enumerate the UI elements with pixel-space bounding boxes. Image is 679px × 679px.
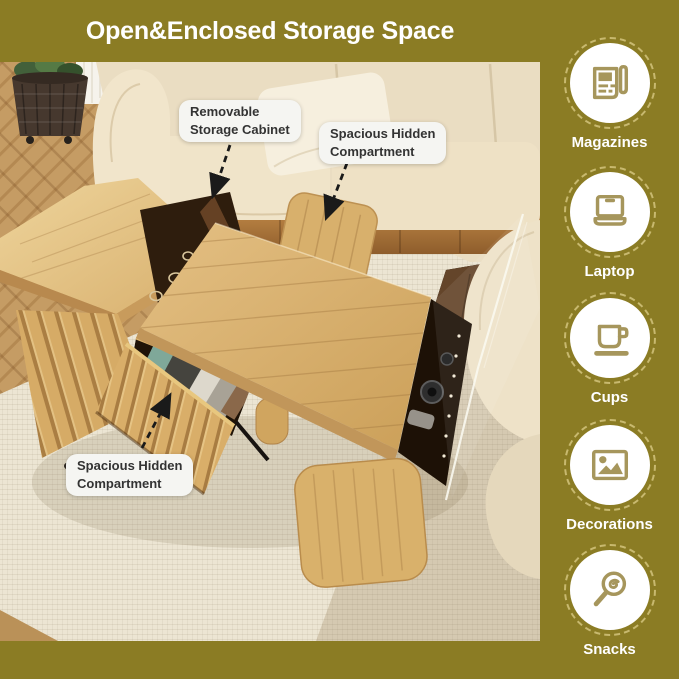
callout-text-line: Spacious Hidden — [77, 457, 182, 475]
sidebar-item-label: Snacks — [583, 641, 636, 658]
product-infographic: Open&Enclosed Storage Space — [0, 0, 679, 679]
icon-badge — [570, 425, 650, 505]
callout-spacious-hidden-compartment-bottom: Spacious Hidden Compartment — [66, 454, 193, 496]
sidebar-item-snacks: Snacks — [540, 544, 679, 658]
icon-ring — [564, 544, 656, 636]
sidebar-item-label: Laptop — [585, 263, 635, 280]
sidebar-item-label: Magazines — [572, 134, 648, 151]
arrow-removable-storage-cabinet — [204, 142, 240, 198]
icon-badge — [570, 43, 650, 123]
living-room-scene — [0, 62, 540, 641]
sidebar-item-decorations: Decorations — [540, 419, 679, 533]
callout-removable-storage-cabinet: Removable Storage Cabinet — [179, 100, 301, 142]
icon-ring — [564, 37, 656, 129]
icon-badge — [570, 172, 650, 252]
callout-text-line: Spacious Hidden — [330, 125, 435, 143]
sidebar-item-label: Decorations — [566, 516, 653, 533]
product-photo: Removable Storage Cabinet Spacious Hidde… — [0, 62, 540, 641]
plant-basket — [12, 62, 88, 144]
icon-badge — [570, 550, 650, 630]
icon-ring — [564, 166, 656, 258]
icon-badge — [570, 298, 650, 378]
sidebar-item-magazines: Magazines — [540, 37, 679, 151]
sidebar-item-cups: Cups — [540, 292, 679, 406]
callout-text-line: Removable — [190, 103, 290, 121]
title-bar: Open&Enclosed Storage Space — [0, 0, 540, 62]
callout-text-line: Compartment — [330, 143, 435, 161]
icon-ring — [564, 292, 656, 384]
laptop-icon — [587, 189, 633, 235]
callout-text-line: Storage Cabinet — [190, 121, 290, 139]
sidebar-item-label: Cups — [591, 389, 629, 406]
feature-sidebar: Magazines Laptop — [540, 0, 679, 679]
icon-ring — [564, 419, 656, 511]
callout-text-line: Compartment — [77, 475, 182, 493]
arrow-spacious-hidden-compartment-top — [320, 160, 356, 218]
magazines-icon — [587, 60, 633, 106]
callout-spacious-hidden-compartment-top: Spacious Hidden Compartment — [319, 122, 446, 164]
page-title: Open&Enclosed Storage Space — [86, 17, 454, 46]
curved-wing-panel-bottom — [293, 457, 429, 590]
snacks-icon — [587, 567, 633, 613]
sidebar-item-laptop: Laptop — [540, 166, 679, 280]
cups-icon — [587, 315, 633, 361]
arrow-spacious-hidden-compartment-bottom — [134, 396, 176, 454]
decorations-icon — [587, 442, 633, 488]
